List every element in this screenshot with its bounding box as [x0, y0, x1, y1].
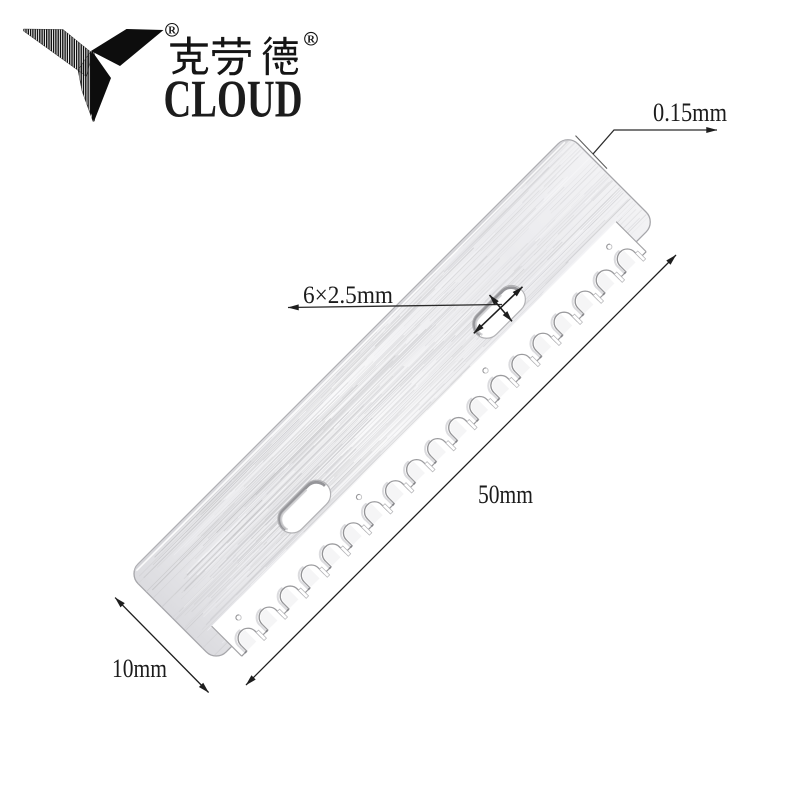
svg-text:6×2.5mm: 6×2.5mm: [303, 282, 394, 309]
svg-text:R: R: [168, 26, 176, 37]
svg-text:CLOUD: CLOUD: [164, 70, 303, 128]
svg-text:R: R: [307, 35, 315, 46]
svg-text:10mm: 10mm: [112, 654, 167, 683]
svg-text:50mm: 50mm: [478, 480, 533, 509]
svg-text:0.15mm: 0.15mm: [653, 98, 727, 127]
